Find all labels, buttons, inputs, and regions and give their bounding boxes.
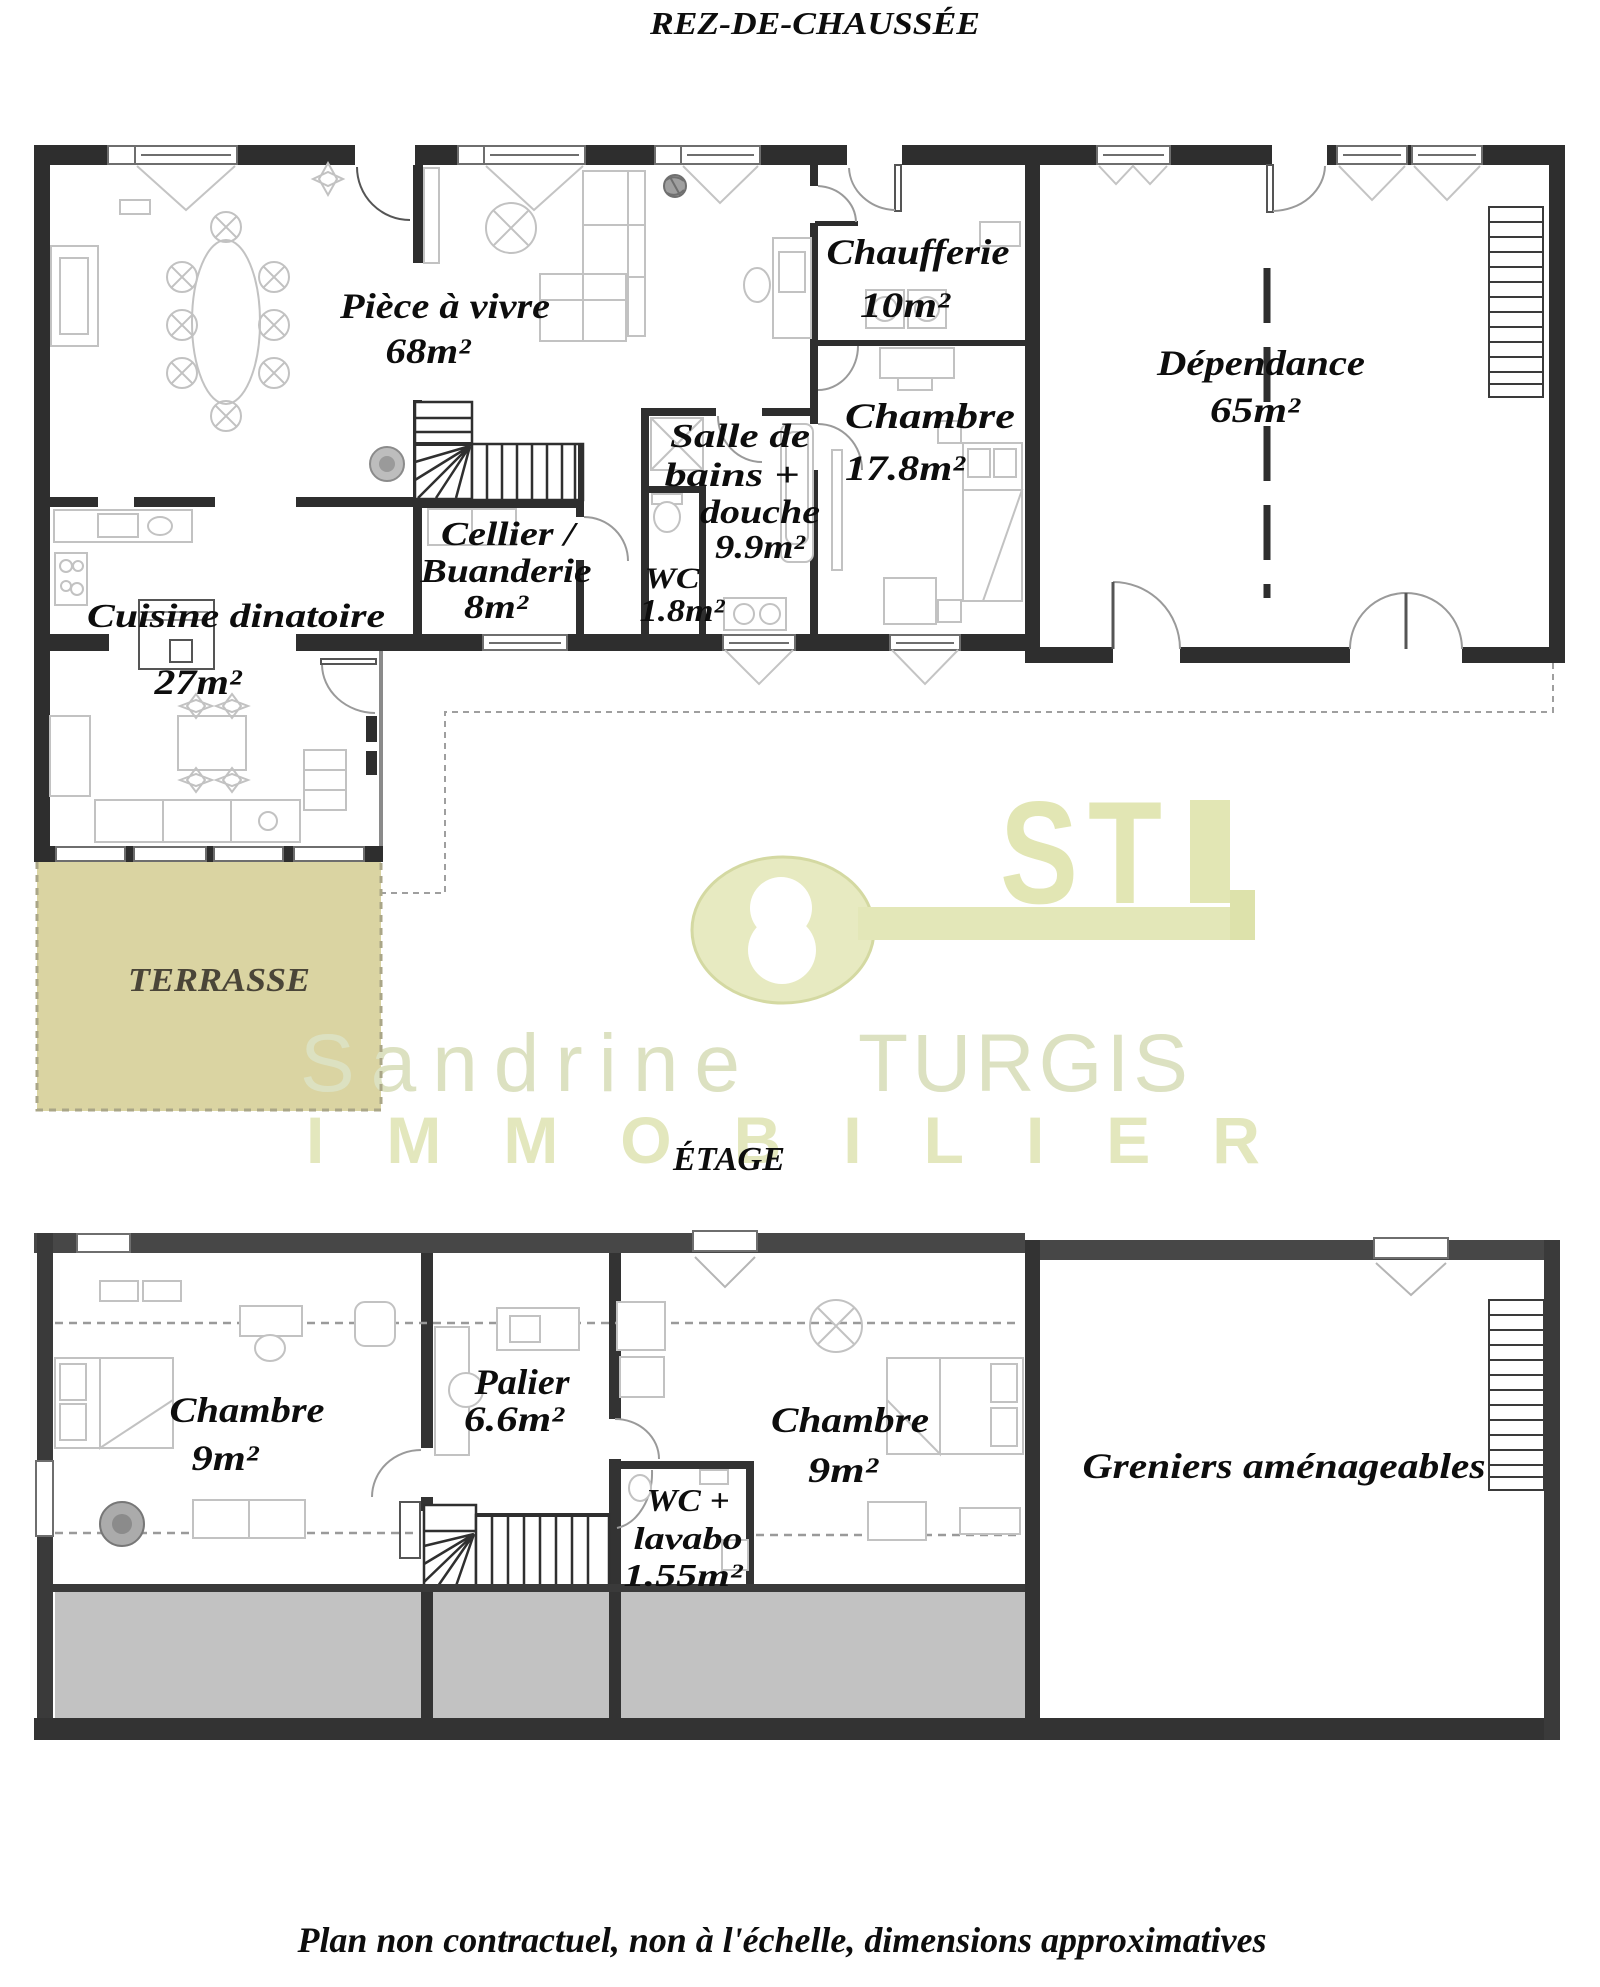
svg-text:lavabo: lavabo xyxy=(634,1520,743,1556)
svg-text:WC: WC xyxy=(645,562,701,595)
svg-text:bains +: bains + xyxy=(665,457,800,494)
svg-text:Greniers aménageables: Greniers aménageables xyxy=(1083,1446,1486,1486)
svg-text:1.8m²: 1.8m² xyxy=(640,592,727,628)
svg-text:8m²: 8m² xyxy=(464,589,529,626)
svg-text:Dépendance: Dépendance xyxy=(1156,343,1365,383)
svg-text:9m²: 9m² xyxy=(192,1438,260,1478)
svg-text:S: S xyxy=(1000,771,1078,934)
svg-text:Chaufferie: Chaufferie xyxy=(827,232,1010,272)
svg-text:68m²: 68m² xyxy=(386,331,472,371)
svg-text:Pièce à vivre: Pièce à vivre xyxy=(339,286,550,326)
svg-text:Salle de: Salle de xyxy=(670,418,810,455)
svg-text:Chambre: Chambre xyxy=(170,1390,325,1430)
svg-text:1.55m²: 1.55m² xyxy=(624,1557,745,1593)
svg-text:27m²: 27m² xyxy=(153,662,243,702)
svg-text:10m²: 10m² xyxy=(860,285,951,325)
svg-text:Palier: Palier xyxy=(473,1362,570,1402)
svg-text:WC +: WC + xyxy=(647,1482,730,1518)
svg-text:65m²: 65m² xyxy=(1210,390,1301,430)
svg-text:6.6m²: 6.6m² xyxy=(464,1399,565,1439)
svg-text:Chambre: Chambre xyxy=(845,396,1015,436)
svg-text:Buanderie: Buanderie xyxy=(419,553,591,590)
svg-text:ÉTAGE: ÉTAGE xyxy=(672,1141,785,1178)
svg-text:douche: douche xyxy=(700,494,820,531)
svg-text:TURGIS: TURGIS xyxy=(858,1018,1188,1109)
svg-text:9m²: 9m² xyxy=(808,1450,879,1490)
svg-text:Plan non contractuel, non à l': Plan non contractuel, non à l'échelle, d… xyxy=(297,1920,1267,1960)
svg-text:T: T xyxy=(1088,771,1162,934)
svg-text:IMMOBILIER: IMMOBILIER xyxy=(306,1103,1322,1177)
svg-text:REZ-DE-CHAUSSÉE: REZ-DE-CHAUSSÉE xyxy=(649,5,980,41)
svg-text:Chambre: Chambre xyxy=(771,1400,929,1440)
svg-text:17.8m²: 17.8m² xyxy=(845,448,966,488)
svg-text:TERRASSE: TERRASSE xyxy=(128,962,310,999)
svg-text:9.9m²: 9.9m² xyxy=(715,529,806,566)
svg-text:Cellier /: Cellier / xyxy=(441,516,579,553)
svg-text:Cuisine dinatoire: Cuisine dinatoire xyxy=(87,598,385,635)
